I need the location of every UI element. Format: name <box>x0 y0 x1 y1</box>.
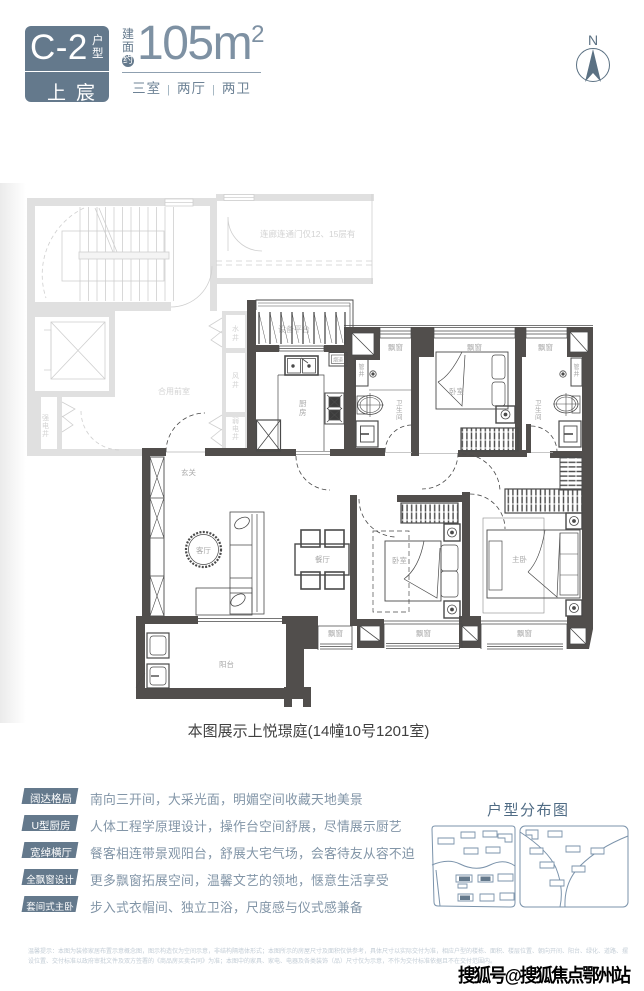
svg-text:飘窗: 飘窗 <box>388 342 403 352</box>
svg-text:生: 生 <box>535 405 542 414</box>
svg-text:井: 井 <box>232 333 239 342</box>
svg-text:间: 间 <box>535 413 542 421</box>
svg-text:卫: 卫 <box>396 399 403 407</box>
svg-text:客厅: 客厅 <box>196 545 211 555</box>
svg-text:玄关: 玄关 <box>181 467 196 477</box>
svg-text:强: 强 <box>42 414 49 422</box>
svg-text:连廊连通门仅12、15层有: 连廊连通门仅12、15层有 <box>260 229 355 239</box>
svg-text:风: 风 <box>232 372 239 380</box>
svg-text:飘窗: 飘窗 <box>538 342 553 352</box>
svg-text:飘窗: 飘窗 <box>517 628 532 638</box>
svg-text:井: 井 <box>232 380 239 389</box>
svg-text:电: 电 <box>232 424 239 433</box>
svg-text:烟道: 烟道 <box>333 357 343 364</box>
svg-text:卧室: 卧室 <box>392 555 407 565</box>
svg-text:生: 生 <box>396 405 403 414</box>
svg-text:井: 井 <box>42 429 49 438</box>
svg-text:主卧: 主卧 <box>512 554 527 564</box>
svg-text:餐厅: 餐厅 <box>315 555 330 564</box>
svg-text:厨: 厨 <box>299 399 307 408</box>
svg-text:井: 井 <box>574 370 580 378</box>
svg-text:房: 房 <box>299 407 307 417</box>
svg-text:弱: 弱 <box>232 417 239 425</box>
svg-text:卧室: 卧室 <box>449 386 464 396</box>
svg-text:飘窗: 飘窗 <box>467 342 482 352</box>
svg-text:阳台: 阳台 <box>219 659 234 669</box>
svg-text:设备平台: 设备平台 <box>278 324 310 334</box>
svg-text:飘窗: 飘窗 <box>416 628 431 638</box>
svg-text:井: 井 <box>232 432 239 441</box>
svg-text:电: 电 <box>42 421 49 430</box>
svg-text:井: 井 <box>359 370 365 378</box>
svg-text:飘窗: 飘窗 <box>328 628 343 638</box>
svg-text:管: 管 <box>574 363 580 371</box>
svg-text:水: 水 <box>232 324 239 333</box>
svg-text:合用前室: 合用前室 <box>158 386 190 396</box>
svg-text:管: 管 <box>359 363 365 371</box>
svg-text:间: 间 <box>396 413 403 421</box>
svg-text:卫: 卫 <box>535 399 542 407</box>
